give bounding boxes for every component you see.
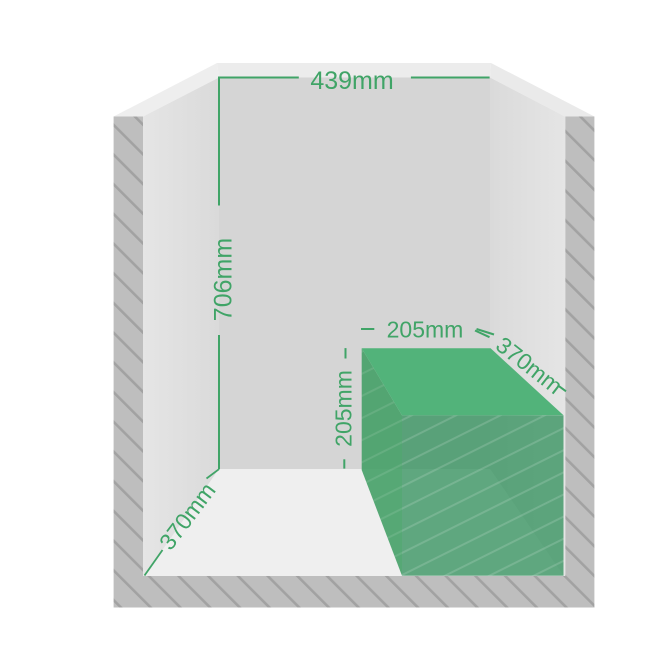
svg-text:205mm: 205mm [331,370,357,447]
svg-text:205mm: 205mm [387,317,464,343]
svg-text:439mm: 439mm [310,67,393,95]
svg-text:706mm: 706mm [210,238,238,321]
